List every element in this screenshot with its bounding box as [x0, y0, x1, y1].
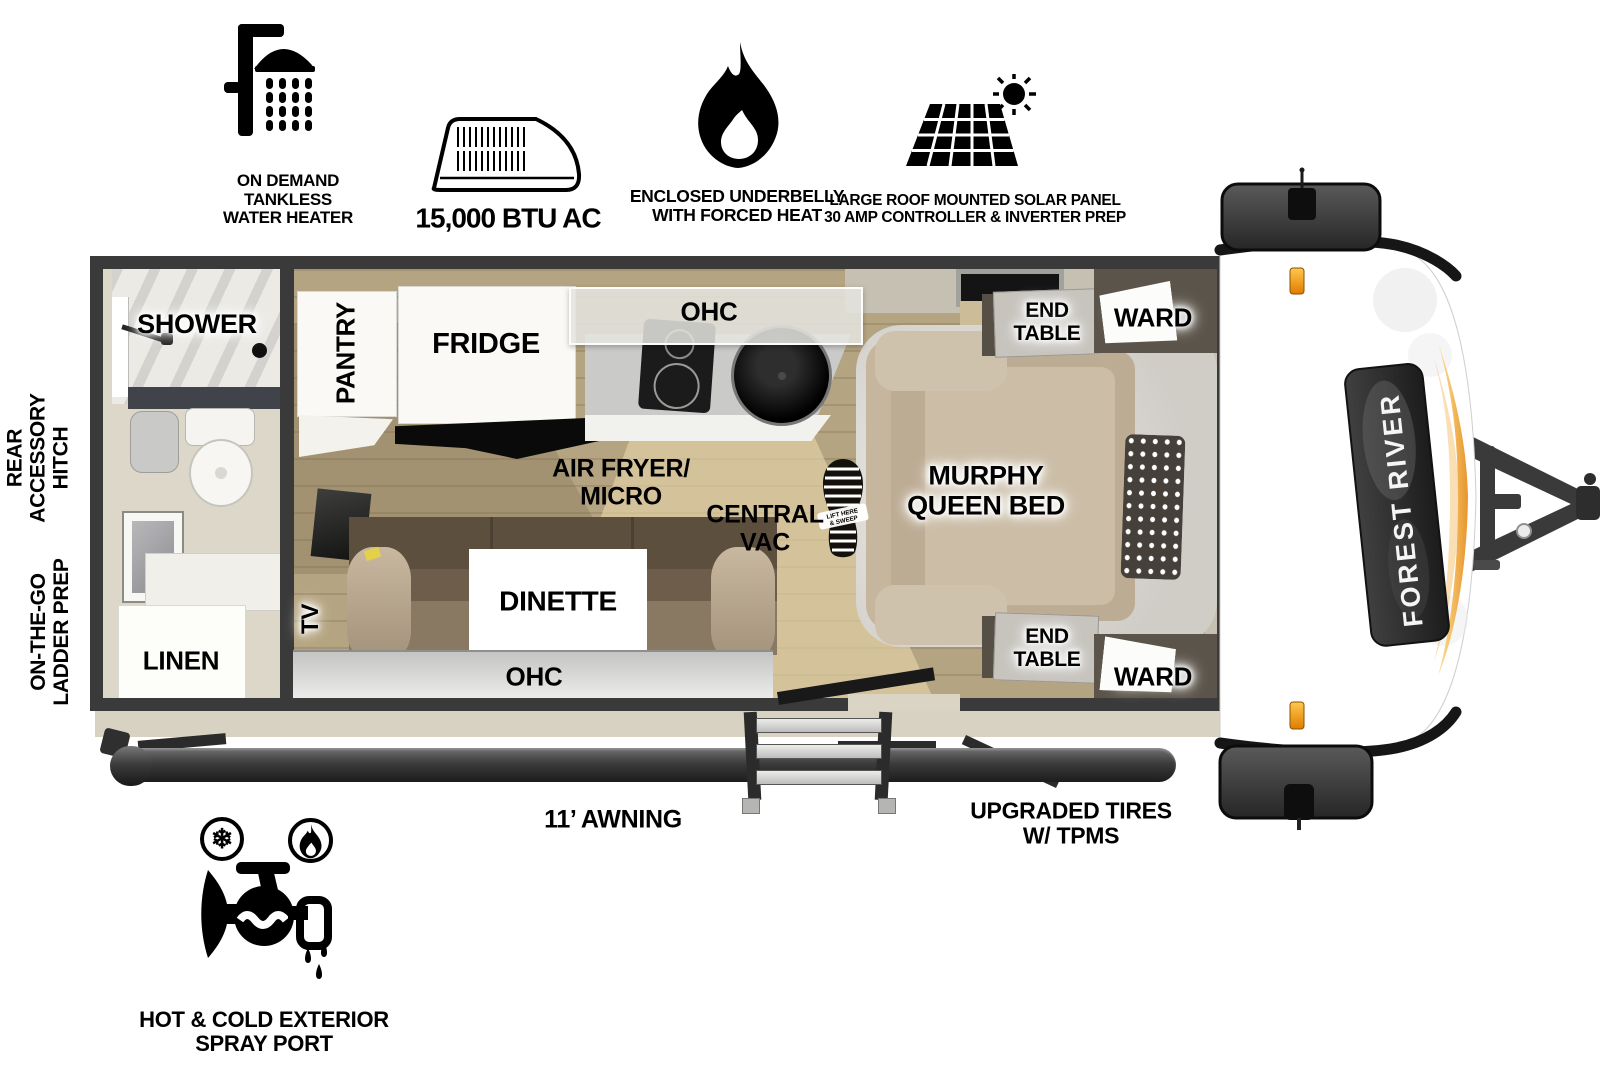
sink-drain — [778, 372, 786, 380]
murphy-bed-label: MURPHY QUEEN BED — [907, 461, 1065, 520]
shower-door — [112, 297, 129, 397]
sidewall-trim — [95, 711, 1245, 737]
front-cap: FOREST RIVER — [1190, 150, 1600, 830]
pantry-label: PANTRY — [332, 302, 361, 404]
jack-wheel — [1517, 524, 1531, 538]
battery-cover — [1220, 746, 1372, 830]
tires-label: UPGRADED TIRES W/ TPMS — [970, 799, 1172, 850]
solar-label: LARGE ROOF MOUNTED SOLAR PANEL 30 AMP CO… — [824, 192, 1126, 226]
coupler-latch — [1584, 473, 1596, 485]
bathroom-wall-divider — [280, 269, 294, 698]
bootprint-icon: LIFT HERE & SWEEP — [817, 457, 869, 561]
end-table-bottom-label: END TABLE — [1014, 625, 1081, 671]
bed-pillow — [1121, 434, 1186, 580]
cap-body — [1220, 245, 1476, 749]
ladder-prep-label: ON-THE-GO LADDER PREP — [27, 552, 73, 712]
shower-drain — [252, 343, 267, 358]
step-tread — [756, 744, 882, 759]
solar-panel-icon — [898, 74, 1040, 178]
dinette-label: DINETTE — [499, 587, 617, 618]
shower-threshold — [128, 387, 280, 409]
step-foot — [878, 798, 896, 814]
spray-faucet-icon — [196, 862, 338, 986]
ohc-dinette-label: OHC — [506, 663, 563, 692]
shower-icon — [222, 20, 338, 148]
bathroom-vanity — [145, 553, 283, 611]
entry-steps — [746, 708, 894, 814]
water-heater-label: ON DEMAND TANKLESS WATER HEATER — [223, 172, 353, 228]
awning-tube-endcap — [110, 746, 152, 786]
ohc-kitchen-label: OHC — [681, 298, 738, 327]
air-fryer-label: AIR FRYER/ MICRO — [552, 456, 690, 511]
step-tread — [756, 718, 882, 733]
snowflake-icon: ❄ — [200, 817, 244, 861]
toilet-flush — [215, 467, 227, 479]
toilet-bowl — [189, 439, 253, 507]
hitch-coupler — [1576, 486, 1600, 520]
step-foot — [742, 798, 760, 814]
marker-light-top — [1290, 268, 1304, 294]
ac-label: 15,000 BTU AC — [415, 204, 600, 235]
shower-label: SHOWER — [137, 310, 257, 340]
shower-pan — [130, 411, 179, 473]
end-table-top-label: END TABLE — [1014, 299, 1081, 345]
burner-large — [652, 361, 701, 410]
dinette-armrest-left — [347, 547, 411, 663]
ac-unit-icon — [424, 112, 592, 198]
linen-label: LINEN — [143, 647, 220, 676]
awning-tube — [114, 748, 1176, 782]
spray-port-label: HOT & COLD EXTERIOR SPRAY PORT — [139, 1008, 389, 1056]
dinette-armrest-right — [711, 547, 775, 663]
marker-light-bottom — [1290, 702, 1304, 729]
flame-icon — [690, 38, 786, 174]
step-tread — [756, 770, 882, 785]
propane-cover — [1222, 168, 1380, 251]
fridge-label: FRIDGE — [432, 329, 540, 361]
ward-top-label: WARD — [1114, 304, 1192, 333]
rear-hitch-label: REAR ACCESSORY HITCH — [3, 378, 72, 538]
hot-flame-icon — [288, 818, 333, 863]
floorplan-diagram: ON DEMAND TANKLESS WATER HEATER 15,000 B… — [0, 0, 1600, 1070]
central-vac-label: CENTRAL VAC — [706, 502, 823, 557]
awning-label: 11’ AWNING — [544, 806, 682, 834]
tv-label: TV — [298, 604, 324, 634]
ward-bottom-label: WARD — [1114, 663, 1192, 692]
underbelly-label: ENCLOSED UNDERBELLY WITH FORCED HEAT — [630, 187, 844, 226]
